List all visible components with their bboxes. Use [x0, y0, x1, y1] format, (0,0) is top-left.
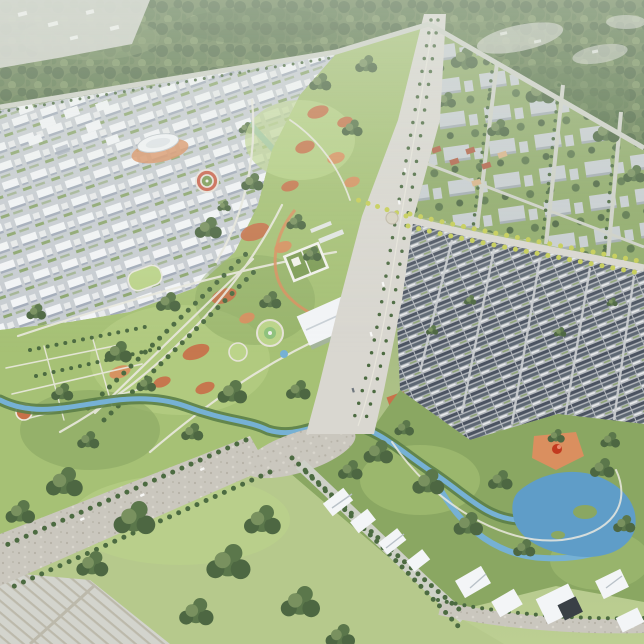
atmospheric-haze: [0, 0, 644, 644]
masterplan-svg: [0, 0, 644, 644]
screenshot-canvas: Oblique bird's-eye 3D rendering of an ur…: [0, 0, 644, 644]
masterplan-rendering: Oblique bird's-eye 3D rendering of an ur…: [0, 0, 644, 644]
